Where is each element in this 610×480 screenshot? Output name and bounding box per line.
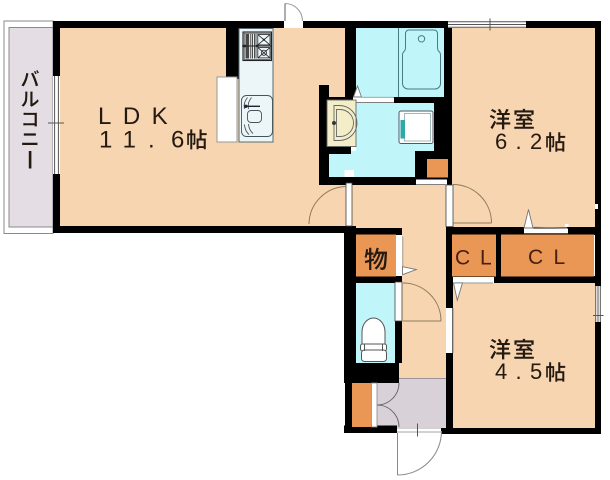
svg-text:.: . bbox=[516, 359, 522, 384]
svg-text:.: . bbox=[148, 127, 155, 154]
svg-text:6: 6 bbox=[495, 129, 507, 154]
svg-text:4: 4 bbox=[495, 359, 507, 384]
svg-text:11: 11 bbox=[99, 127, 148, 154]
svg-text:.: . bbox=[516, 129, 522, 154]
svg-text:5: 5 bbox=[530, 359, 542, 384]
svg-text:6: 6 bbox=[171, 127, 184, 154]
svg-text:2: 2 bbox=[530, 129, 542, 154]
